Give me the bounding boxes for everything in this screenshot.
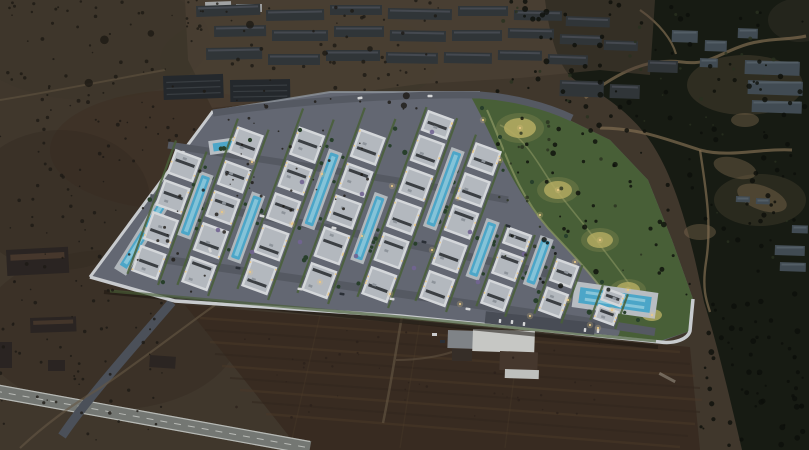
aerial-photo: Aerial dusk rendering of a large white l… [0,0,809,450]
aerial-render-canvas: Aerial dusk rendering of a large white l… [0,0,809,450]
dusk-tint [0,0,809,450]
